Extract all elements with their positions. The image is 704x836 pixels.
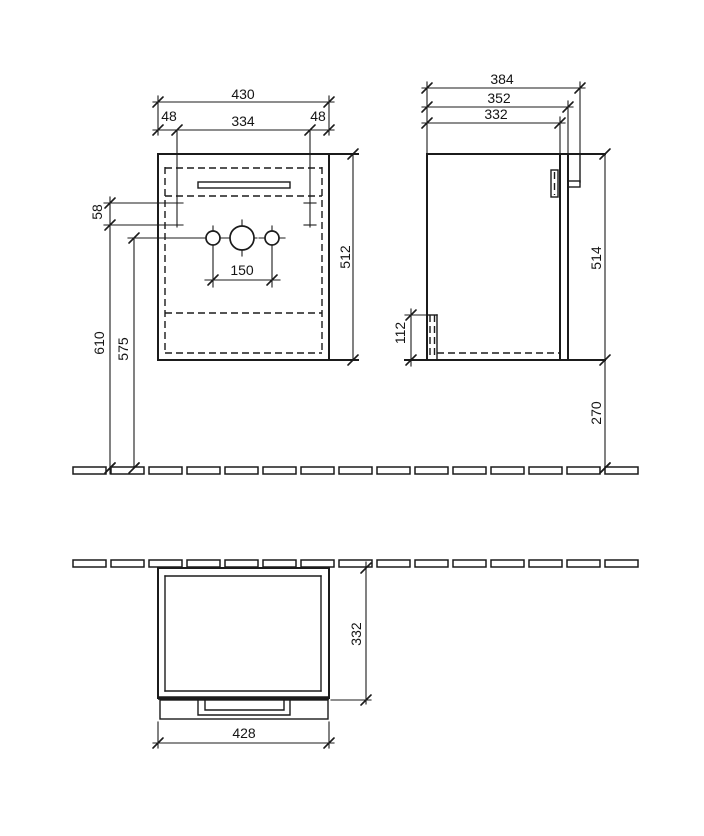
dim-front-bracket-height: 610 xyxy=(91,331,107,355)
top-dimensions: 332 428 xyxy=(153,562,371,748)
dim-front-bracket-offset: 58 xyxy=(89,204,105,220)
dim-side-recess-height: 112 xyxy=(392,322,408,345)
front-cabinet-outline xyxy=(158,154,358,360)
dim-side-overall-depth: 384 xyxy=(490,71,514,87)
dim-side-carcass-depth: 332 xyxy=(484,106,508,122)
dim-top-depth: 332 xyxy=(348,622,364,646)
technical-drawing-page: 430 48 334 48 58 610 575 xyxy=(0,0,704,836)
door-handle xyxy=(198,182,290,188)
side-dimensions: 384 352 332 514 270 112 xyxy=(392,71,610,474)
dim-side-floor-clearance: 270 xyxy=(588,401,604,425)
front-view: 430 48 334 48 58 610 575 xyxy=(89,86,358,474)
top-carcass-outline xyxy=(158,568,329,698)
dim-front-inner-width: 334 xyxy=(231,113,255,129)
dim-side-height: 514 xyxy=(588,246,604,270)
front-dimensions: 430 48 334 48 58 610 575 xyxy=(89,86,358,474)
dim-front-overall-width: 430 xyxy=(231,86,255,102)
floor-hatch-line xyxy=(73,463,638,474)
top-door-front xyxy=(160,700,328,719)
dim-front-tap-hole-height: 575 xyxy=(115,337,131,361)
dim-top-front-width: 428 xyxy=(232,725,256,741)
side-view: 384 352 332 514 270 112 xyxy=(392,71,610,474)
dim-front-right-offset: 48 xyxy=(310,108,326,124)
mounting-bracket-lines xyxy=(177,131,316,227)
front-hidden-lines xyxy=(165,167,322,353)
side-bottom-recess xyxy=(427,315,560,360)
side-handle-profile xyxy=(551,170,580,197)
wall-hatch-line xyxy=(73,560,638,567)
dim-front-height: 512 xyxy=(337,245,353,269)
top-view: 332 428 xyxy=(153,562,371,748)
dim-front-tap-hole-spacing: 150 xyxy=(230,262,254,278)
dim-side-depth-with-front: 352 xyxy=(487,90,511,106)
dim-front-left-offset: 48 xyxy=(161,108,177,124)
cabinet-technical-drawing: 430 48 334 48 58 610 575 xyxy=(0,0,704,836)
